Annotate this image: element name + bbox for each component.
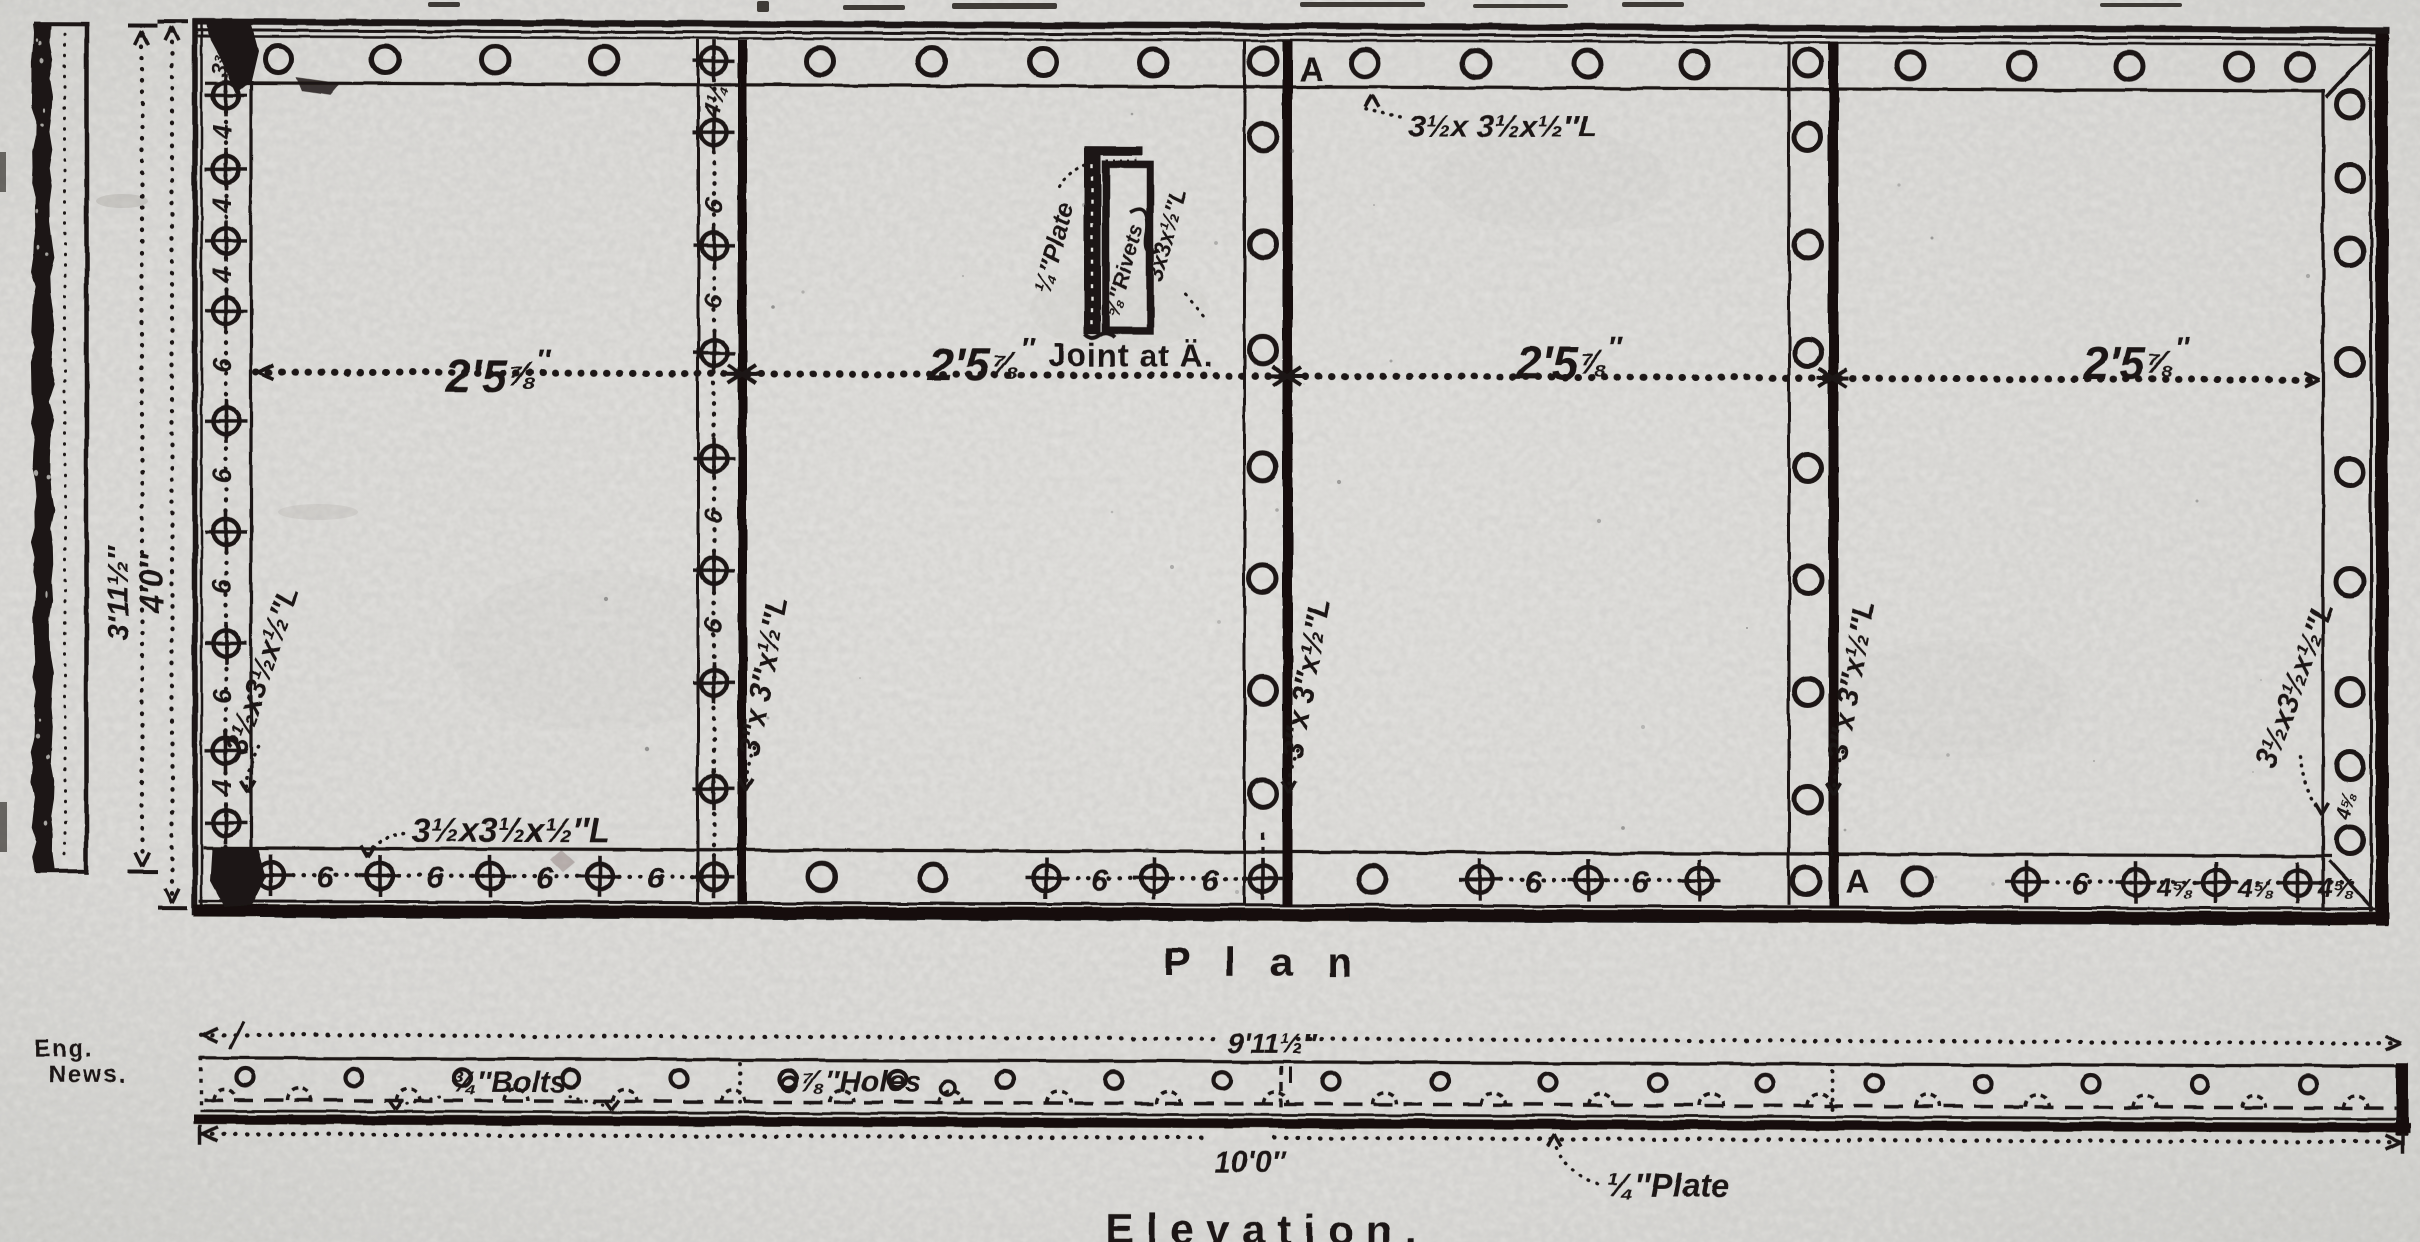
svg-text:4: 4 [207, 124, 237, 140]
svg-text:10'0″: 10'0″ [1214, 1146, 1287, 1179]
svg-text:3½x 3½x½″L: 3½x 3½x½″L [1408, 108, 1597, 144]
svg-text:4: 4 [207, 779, 237, 795]
svg-text:2'5: 2'5 [1515, 337, 1580, 389]
svg-text:6: 6 [317, 861, 334, 894]
svg-text:2'5: 2'5 [2082, 337, 2147, 389]
svg-text:A: A [1845, 863, 1870, 901]
svg-text:4: 4 [207, 268, 237, 284]
svg-text:3'11½″: 3'11½″ [102, 544, 135, 640]
svg-text:⅞: ⅞ [1579, 343, 1607, 381]
svg-text:6: 6 [2072, 868, 2089, 901]
svg-text:4⅝: 4⅝ [2317, 873, 2354, 903]
svg-text:2'5: 2'5 [927, 339, 992, 391]
svg-text:6: 6 [537, 862, 554, 895]
svg-text:4⅝: 4⅝ [2237, 873, 2274, 903]
svg-text:Eng.: Eng. [34, 1035, 94, 1062]
svg-text:6: 6 [207, 578, 237, 594]
svg-text:News.: News. [48, 1061, 127, 1088]
svg-text:P l a n: P l a n [1163, 938, 1365, 985]
svg-text:″: ″ [2175, 331, 2191, 364]
svg-text:⅞: ⅞ [991, 345, 1019, 383]
svg-text:¾″Bolts: ¾″Bolts [452, 1066, 566, 1099]
svg-text:6: 6 [1092, 864, 1109, 897]
svg-text:6: 6 [207, 688, 237, 704]
svg-text:⅞: ⅞ [508, 356, 536, 394]
svg-text:4: 4 [207, 197, 237, 213]
svg-text:Joint at Ä.: Joint at Ä. [1048, 337, 1214, 374]
svg-text:6: 6 [1525, 866, 1542, 899]
svg-text:4⅝: 4⅝ [2156, 872, 2193, 902]
svg-text:6: 6 [427, 862, 444, 895]
svg-text:2'5: 2'5 [444, 350, 509, 402]
svg-text:″: ″ [1608, 331, 1624, 364]
svg-text:⅞: ⅞ [2146, 343, 2174, 381]
svg-text:9'11½″: 9'11½″ [1228, 1028, 1318, 1059]
svg-text:″: ″ [1020, 333, 1036, 366]
svg-text:6: 6 [647, 862, 664, 895]
svg-text:6: 6 [207, 357, 237, 373]
svg-text:″: ″ [536, 344, 552, 377]
svg-text:¼″Plate: ¼″Plate [1607, 1166, 1729, 1203]
svg-text:E l e v a t i o n .: E l e v a t i o n . [1106, 1205, 1418, 1242]
svg-text:A: A [1299, 51, 1324, 89]
svg-text:3½x3½x½″L: 3½x3½x½″L [412, 812, 610, 851]
svg-text:⅞″Holes: ⅞″Holes [800, 1065, 921, 1098]
svg-text:6: 6 [1202, 865, 1219, 898]
svg-text:6: 6 [1632, 866, 1649, 899]
svg-text:4'0″: 4'0″ [134, 552, 170, 613]
svg-text:6: 6 [207, 467, 237, 483]
